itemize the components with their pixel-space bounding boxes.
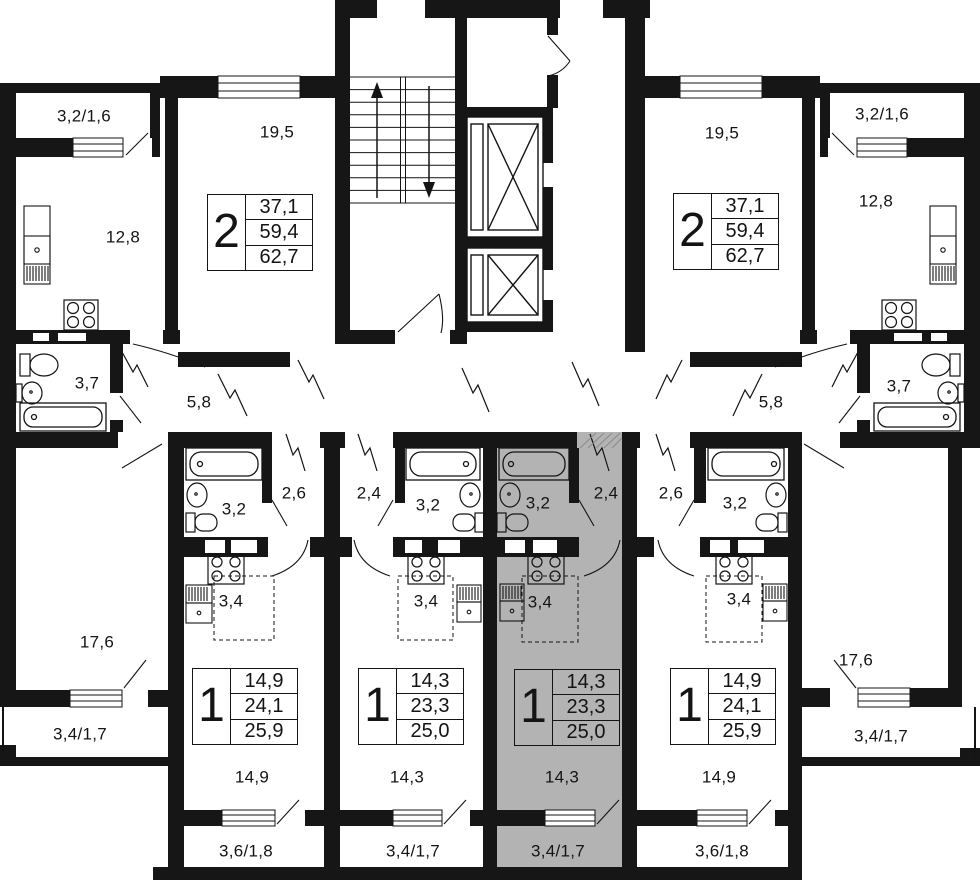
room-area-label: 19,5 bbox=[705, 125, 739, 142]
room-count: 2 bbox=[208, 195, 246, 270]
room-area-label: 2,6 bbox=[282, 485, 307, 502]
room-area-label: 3,4/1,7 bbox=[854, 728, 908, 745]
room-area-label: 19,5 bbox=[260, 124, 294, 141]
apartment-info-table: 1 14,3 23,3 25,0 bbox=[358, 668, 464, 745]
room-area-label: 17,6 bbox=[839, 652, 873, 669]
room-count: 1 bbox=[359, 669, 397, 744]
area-value: 23,3 bbox=[553, 695, 619, 720]
area-value: 14,3 bbox=[397, 669, 463, 694]
room-area-label: 3,7 bbox=[75, 375, 100, 392]
room-area-label: 3,4 bbox=[414, 593, 439, 610]
area-value: 59,4 bbox=[246, 220, 312, 245]
room-area-label: 3,6/1,8 bbox=[219, 843, 273, 860]
room-area-label: 12,8 bbox=[106, 229, 140, 246]
room-area-label: 14,9 bbox=[235, 769, 269, 786]
area-value: 62,7 bbox=[712, 245, 778, 269]
apartment-info-table: 2 37,1 59,4 62,7 bbox=[673, 193, 779, 270]
room-area-label: 14,3 bbox=[545, 769, 579, 786]
room-area-label: 14,9 bbox=[702, 769, 736, 786]
area-value: 14,9 bbox=[231, 669, 297, 694]
area-value: 24,1 bbox=[231, 694, 297, 719]
apartment-info-table: 2 37,1 59,4 62,7 bbox=[207, 194, 313, 271]
room-area-label: 3,2/1,6 bbox=[57, 108, 111, 125]
area-value: 14,3 bbox=[553, 670, 619, 695]
room-area-label: 5,8 bbox=[187, 394, 212, 411]
room-area-label: 3,2/1,6 bbox=[855, 106, 909, 123]
apartment-info-table: 1 14,3 23,3 25,0 bbox=[514, 669, 620, 746]
room-area-label: 2,4 bbox=[357, 485, 382, 502]
room-count: 2 bbox=[674, 194, 712, 269]
room-area-label: 3,2 bbox=[526, 495, 551, 512]
room-area-label: 12,8 bbox=[859, 193, 893, 210]
room-area-label: 2,6 bbox=[659, 485, 684, 502]
room-area-label: 3,4/1,7 bbox=[386, 843, 440, 860]
apartment-flat-d[interactable] bbox=[622, 432, 788, 880]
area-value: 59,4 bbox=[712, 219, 778, 244]
apartment-flat-b[interactable] bbox=[324, 432, 483, 880]
apartment-info-table: 1 14,9 24,1 25,9 bbox=[670, 668, 776, 745]
room-area-label: 3,2 bbox=[416, 497, 441, 514]
area-value: 37,1 bbox=[712, 194, 778, 219]
area-value: 23,3 bbox=[397, 694, 463, 719]
floor-plan-page: 3,2/1,6 19,5 12,8 3,7 5,8 17,6 3,4/1,7 3… bbox=[0, 0, 980, 880]
room-area-label: 5,8 bbox=[759, 394, 784, 411]
room-area-label: 3,2 bbox=[723, 495, 748, 512]
room-area-label: 3,4 bbox=[727, 591, 752, 608]
apartment-info-table: 1 14,9 24,1 25,9 bbox=[192, 668, 298, 745]
area-value: 25,9 bbox=[709, 720, 775, 744]
area-value: 25,0 bbox=[553, 721, 619, 745]
elevator-icon bbox=[467, 117, 543, 322]
room-area-label: 14,3 bbox=[390, 769, 424, 786]
room-area-label: 2,4 bbox=[594, 485, 619, 502]
room-area-label: 3,2 bbox=[222, 501, 247, 518]
area-value: 25,9 bbox=[231, 720, 297, 744]
room-count: 1 bbox=[193, 669, 231, 744]
area-value: 14,9 bbox=[709, 669, 775, 694]
stairs-icon bbox=[350, 77, 455, 203]
room-area-label: 3,4/1,7 bbox=[53, 726, 107, 743]
room-area-label: 3,4/1,7 bbox=[531, 843, 585, 860]
room-count: 1 bbox=[515, 670, 553, 745]
room-area-label: 3,4 bbox=[528, 594, 553, 611]
area-value: 25,0 bbox=[397, 720, 463, 744]
area-value: 37,1 bbox=[246, 195, 312, 220]
room-area-label: 3,6/1,8 bbox=[695, 843, 749, 860]
area-value: 24,1 bbox=[709, 694, 775, 719]
room-count: 1 bbox=[671, 669, 709, 744]
room-area-label: 3,7 bbox=[887, 378, 912, 395]
room-area-label: 17,6 bbox=[80, 634, 114, 651]
area-value: 62,7 bbox=[246, 246, 312, 270]
room-area-label: 3,4 bbox=[219, 593, 244, 610]
